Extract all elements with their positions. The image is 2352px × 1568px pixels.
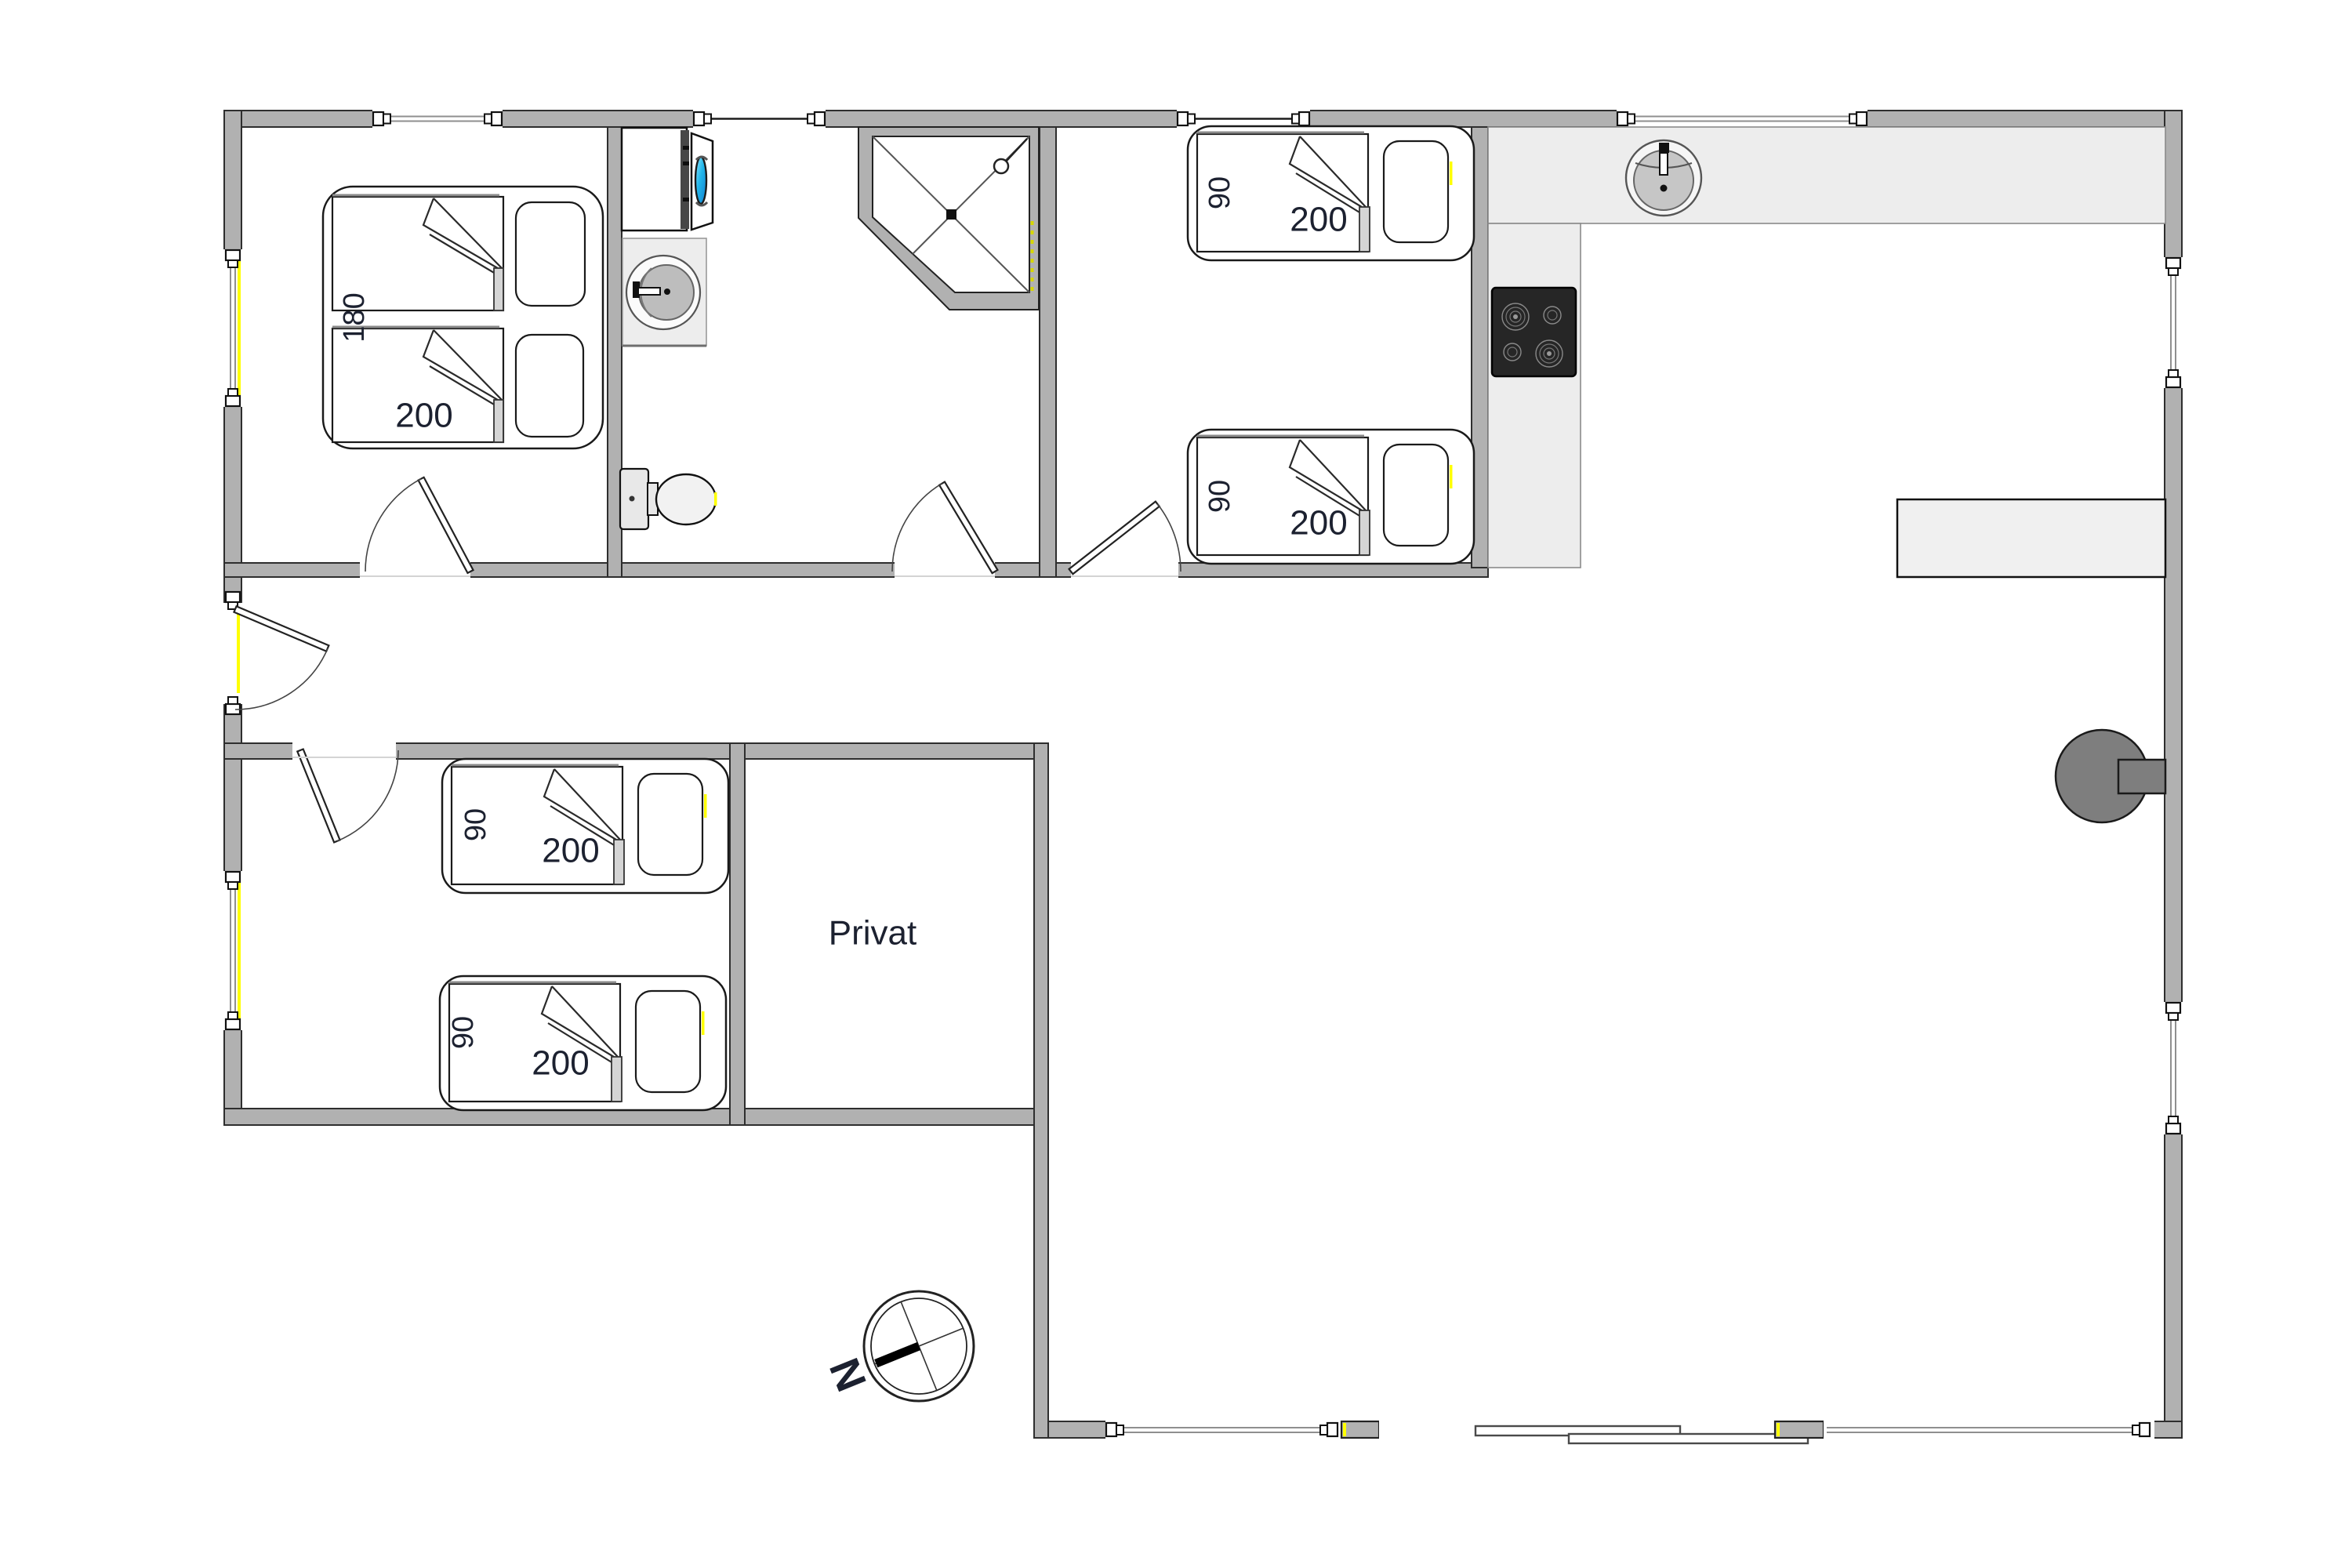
svg-text:90: 90 <box>1203 176 1236 209</box>
svg-text:200: 200 <box>532 1044 589 1083</box>
svg-text:180: 180 <box>338 292 371 342</box>
svg-text:Privat: Privat <box>829 914 916 953</box>
svg-text:90: 90 <box>1203 480 1236 513</box>
svg-text:200: 200 <box>542 832 599 870</box>
svg-text:200: 200 <box>1290 201 1347 239</box>
svg-text:200: 200 <box>395 397 452 435</box>
svg-text:90: 90 <box>459 808 492 841</box>
svg-text:90: 90 <box>447 1016 480 1049</box>
svg-text:200: 200 <box>1290 504 1347 543</box>
